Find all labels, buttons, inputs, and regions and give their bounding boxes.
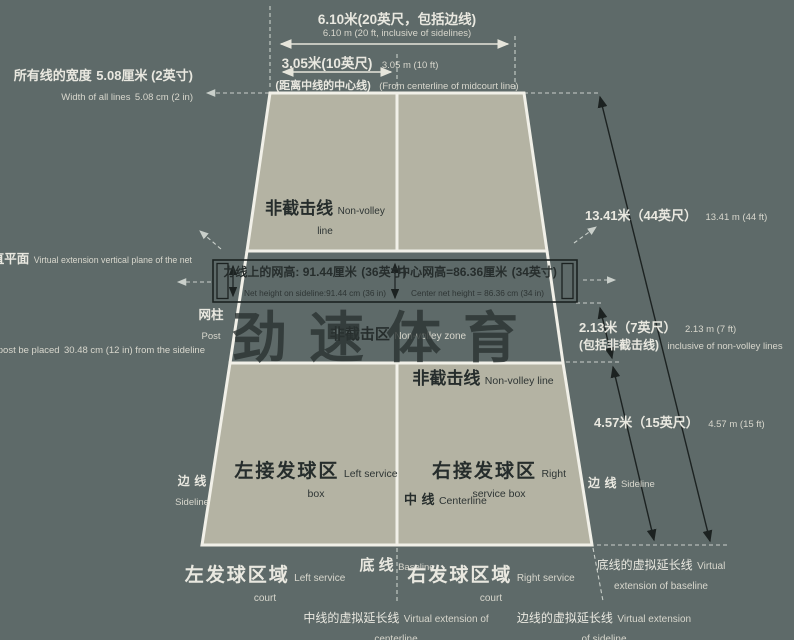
baseline-extension-label: 底线的虚拟延长线 Virtual extension of baseline: [576, 555, 746, 594]
sideline-label-left: 边 线 Sideline: [162, 471, 222, 510]
centerline-extension-label: 中线的虚拟延长线 Virtual extension of centerline: [296, 608, 496, 640]
right-corner-pointer-arrow: [574, 227, 596, 243]
net-plane-note: 球网的虚拟延伸垂直平面 Virtual extension vertical p…: [0, 249, 192, 269]
dim-total-width: 6.10米(20英尺，包括边线) 6.10 m (20 ft, inclusiv…: [230, 12, 564, 40]
sideline-label-right: 边 线 Sideline: [588, 473, 655, 493]
left-corner-pointer-arrow: [200, 231, 221, 249]
dim-half-width: 3.05米(10英尺) 3.05 m (10 ft): [240, 54, 480, 74]
watermark-text: 劲速体育: [232, 293, 540, 373]
dim-court-length: 13.41米（44英尺） 13.41 m (44 ft): [585, 206, 767, 226]
left-service-box-label: 左接发球区 Left service box: [231, 460, 401, 503]
dim-nvz-depth-note: (包括非截击线) inclusive of non-volley lines: [579, 335, 783, 355]
left-service-court-label: 左发球区域 Left service court: [180, 564, 350, 607]
non-volley-line-top-label: 非截击线 Non-volley line: [260, 199, 390, 239]
pickleball-court-diagram: 6.10米(20英尺，包括边线) 6.10 m (20 ft, inclusiv…: [0, 0, 794, 640]
dim-half-width-note: (距离中线的中心线) (From centerline of midcourt …: [230, 75, 564, 95]
line-width-note: 所有线的宽度 5.08厘米 (2英寸) Width of all lines 5…: [3, 66, 193, 105]
arrow-service-depth: [613, 367, 654, 540]
dim-service-depth: 4.57米（15英尺） 4.57 m (15 ft): [594, 413, 765, 433]
centerline-label: 中 线 Centerline: [404, 490, 487, 510]
post-placement-note: 建议网柱放置在距离边线 30.48厘米(12英寸)处 It is recomme…: [0, 339, 205, 359]
right-service-court-label: 右发球区域 Right service court: [406, 564, 576, 607]
sideline-extension-label: 边线的虚拟延长线 Virtual extension of sideline: [514, 608, 694, 640]
